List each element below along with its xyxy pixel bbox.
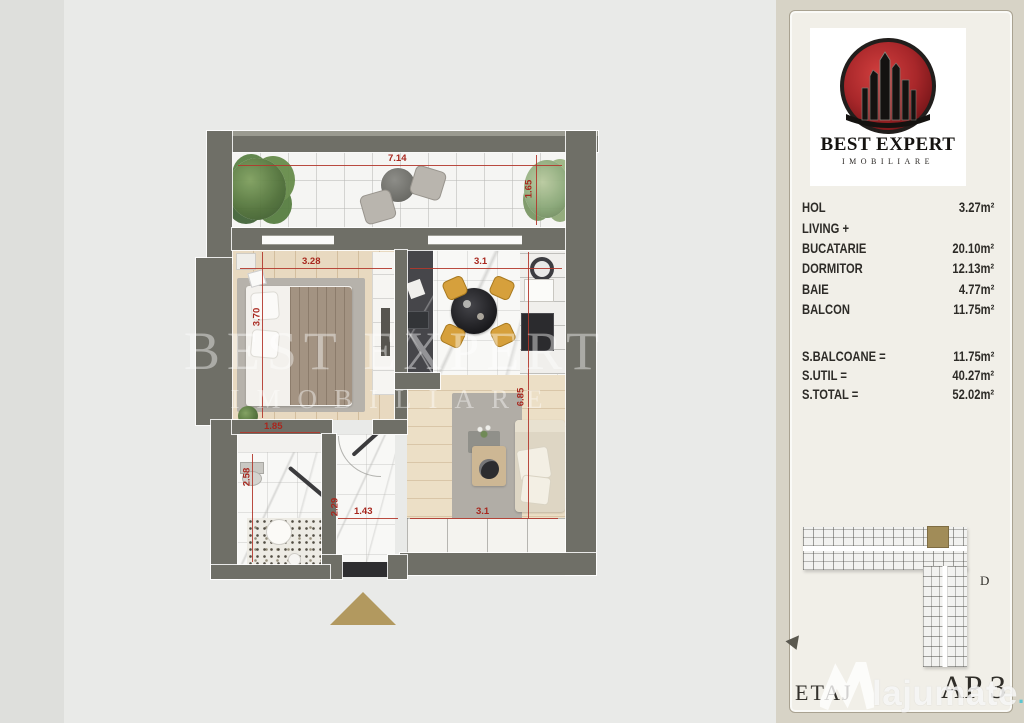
dimension-line — [410, 518, 558, 519]
room-label: HOL — [802, 199, 826, 215]
room-label: BALCON — [802, 301, 850, 317]
wall-left-lower — [196, 258, 232, 425]
room-list: HOL 3.27m² LIVING + BUCATARIE 20.10m² DO… — [802, 197, 994, 319]
sofa-cushion — [519, 474, 551, 505]
agency-logo-icon — [838, 36, 938, 136]
keyplan-highlight-unit — [928, 527, 948, 547]
total-row: S.UTIL = 40.27m² — [802, 365, 994, 384]
floorplan-listing-screenshot: { "plan": { "watermark": { "line1": "BES… — [0, 0, 1024, 723]
balcony-parapet-wall — [222, 131, 598, 152]
keyplan-wing-vertical — [923, 566, 967, 667]
site-watermark-icon — [820, 662, 874, 712]
stove — [521, 313, 554, 351]
dimension-line — [240, 432, 320, 433]
total-value: 11.75m² — [953, 348, 994, 364]
dim-hall-depth: 2.29 — [330, 498, 340, 517]
room-row: DORMITOR 12.13m² — [802, 258, 994, 278]
room-row: HOL 3.27m² — [802, 197, 994, 217]
shower-stool — [266, 519, 292, 545]
bath-vanity — [237, 434, 324, 454]
kitchen-sink-dark — [407, 311, 429, 329]
wall-bath-left — [211, 420, 237, 579]
dim-bath-depth: 2.58 — [242, 468, 252, 487]
total-label: S.UTIL = — [802, 367, 847, 383]
dimension-line — [536, 155, 537, 225]
entrance-arrow-icon — [330, 592, 396, 625]
plan-background: 7.14 1.65 3.28 3.70 3.1 6.85 3.1 1.85 2.… — [0, 0, 776, 723]
coffee-table-tray — [479, 459, 499, 479]
bed-blanket — [290, 287, 352, 405]
wardrobe-mirror — [381, 308, 390, 356]
dim-bath-width: 1.85 — [264, 422, 283, 432]
dimension-line — [338, 518, 398, 519]
wall-bedroom-hall-right — [373, 420, 407, 434]
dimension-line — [262, 252, 263, 418]
room-label: BAIE — [802, 281, 829, 297]
total-row: S.BALCOANE = 11.75m² — [802, 346, 994, 365]
wall-right — [566, 131, 596, 575]
dim-kitchen-width: 3.1 — [474, 257, 487, 267]
info-panel: BEST EXPERT IMOBILIARE HOL 3.27m² LIVING… — [776, 0, 1024, 723]
agency-logo: BEST EXPERT IMOBILIARE — [810, 28, 966, 186]
wall-kitchen-living-stub — [395, 373, 440, 389]
wall-bath-bottom — [211, 565, 330, 579]
room-area: 11.75m² — [953, 301, 994, 317]
total-label: S.TOTAL = — [802, 386, 858, 402]
dim-balcony-depth: 1.65 — [524, 180, 534, 199]
dim-hall-width: 1.43 — [354, 507, 373, 517]
room-row: BUCATARIE 20.10m² — [802, 238, 994, 258]
agency-logo-title: BEST EXPERT — [810, 134, 966, 156]
wall-bottom-living — [400, 553, 596, 575]
kitchen-window — [428, 235, 522, 245]
total-label: S.BALCOANE = — [802, 348, 886, 364]
dim-living-width: 3.1 — [476, 507, 489, 517]
wall-left-upper — [207, 131, 232, 263]
dim-bedroom-depth: 3.70 — [252, 308, 262, 327]
dim-balcony-width: 7.14 — [388, 154, 407, 164]
dim-bedroom-width: 3.28 — [302, 257, 321, 267]
site-watermark: lajumate.ro — [872, 674, 1024, 714]
bedroom-window — [262, 235, 334, 245]
table-plate — [477, 313, 484, 320]
total-value: 40.27m² — [952, 367, 994, 383]
dim-living-depth: 6.85 — [516, 388, 526, 407]
total-row: S.TOTAL = 52.02m² — [802, 384, 994, 403]
entrance-mat — [340, 562, 389, 577]
total-value: 52.02m² — [952, 386, 994, 402]
flower-deco-icon — [474, 423, 494, 439]
room-label: BUCATARIE — [802, 240, 866, 256]
site-watermark-tld: .ro — [1018, 683, 1024, 708]
wall-entrance-right — [388, 555, 407, 579]
site-watermark-name: lajumate — [872, 674, 1018, 713]
background-shade-strip — [0, 0, 64, 723]
dimension-line — [410, 268, 562, 269]
table-plate — [463, 300, 471, 308]
room-area: 20.10m² — [952, 240, 994, 256]
room-row: BALCON 11.75m² — [802, 299, 994, 319]
room-label: DORMITOR — [802, 260, 863, 276]
room-row: LIVING + — [802, 217, 994, 237]
kitchen-round-sink — [530, 257, 554, 281]
room-area: 12.13m² — [952, 260, 994, 276]
sofa-backrest — [515, 420, 565, 432]
keyplan-section-label: D — [980, 573, 989, 589]
room-row: BAIE 4.77m² — [802, 279, 994, 299]
agency-logo-subtitle: IMOBILIARE — [810, 157, 966, 166]
dimension-line — [528, 252, 529, 518]
tv-cabinet-row — [407, 518, 566, 554]
room-area: 3.27m² — [959, 199, 994, 215]
wall-bedroom-kitchen — [395, 250, 407, 420]
totals-list: S.BALCOANE = 11.75m² S.UTIL = 40.27m² S.… — [802, 346, 994, 403]
dimension-line — [238, 165, 562, 166]
bed-pillow — [250, 329, 280, 359]
room-label: LIVING + — [802, 220, 849, 236]
room-area: 4.77m² — [959, 281, 994, 297]
balcony-plant-left-icon — [228, 158, 286, 220]
